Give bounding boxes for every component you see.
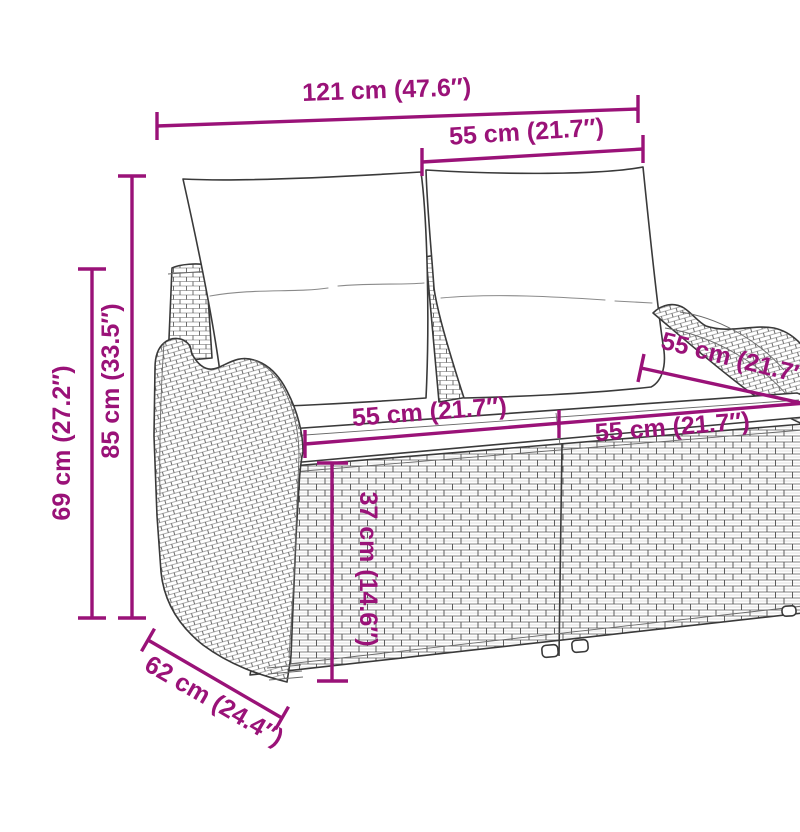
armrest-left bbox=[154, 338, 303, 682]
dim-label-width-total: 121 cm (47.6″) bbox=[302, 73, 472, 107]
dim-label-height-total: 85 cm (33.5″) bbox=[97, 303, 125, 458]
product-dimension-figure: 121 cm (47.6″) 55 cm (21.7″) 85 cm (33.5… bbox=[40, 16, 800, 816]
dimension-diagram-canvas: 121 cm (47.6″) 55 cm (21.7″) 85 cm (33.5… bbox=[40, 16, 800, 816]
dim-label-width-seat-top: 55 cm (21.7″) bbox=[448, 113, 605, 150]
dim-label-seat-height: 37 cm (14.6″) bbox=[354, 491, 382, 646]
dim-label-height-secondary: 69 cm (27.2″) bbox=[48, 365, 76, 520]
back-cushion-right bbox=[426, 167, 664, 398]
